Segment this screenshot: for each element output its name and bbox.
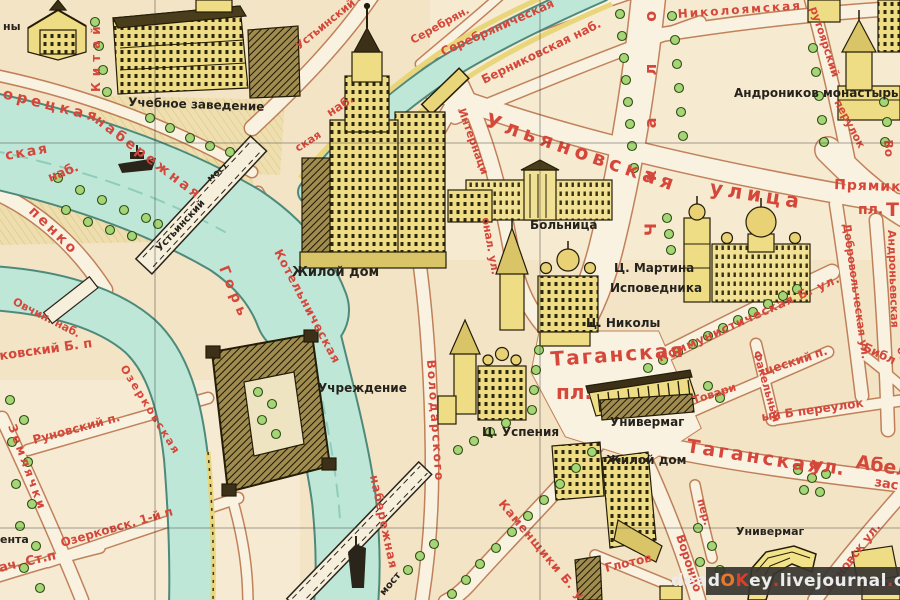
tree-icon	[20, 416, 29, 425]
tree-icon	[142, 214, 151, 223]
tree-icon	[667, 246, 676, 255]
poi-label-универмаг: Универмаг	[610, 415, 684, 429]
tree-icon	[128, 232, 137, 241]
tree-icon	[540, 496, 549, 505]
tree-icon	[626, 120, 635, 129]
poi-label-ц-успения: Ц. Успения	[482, 425, 559, 439]
watermark-text: livejournal	[780, 571, 887, 591]
watermark-dot: .	[773, 571, 780, 591]
street-label-т: Т	[886, 199, 899, 221]
poi-label-жилой-дом: Жилой дом	[606, 453, 686, 467]
street-label-прямико: Прямико	[834, 177, 900, 196]
map-canvas: орецкаяскаянаб.набережнаяКитайУстьинский…	[0, 0, 900, 600]
poi-label-универмаг: Универмаг	[736, 525, 804, 538]
tree-icon	[671, 36, 680, 45]
tree-icon	[106, 226, 115, 235]
map-viewport: орецкаяскаянаб.набережнаяКитайУстьинский…	[0, 0, 900, 600]
tree-icon	[556, 480, 565, 489]
tree-icon	[816, 488, 825, 497]
tree-icon	[675, 84, 684, 93]
tree-icon	[16, 522, 25, 531]
tree-icon	[620, 54, 629, 63]
watermark-text: ey	[749, 571, 773, 591]
tree-icon	[622, 76, 631, 85]
tree-icon	[76, 186, 85, 195]
tree-icon	[530, 386, 539, 395]
tree-icon	[618, 32, 627, 41]
tree-icon	[32, 542, 41, 551]
tree-icon	[120, 206, 129, 215]
tree-icon	[84, 218, 93, 227]
livejournal-watermark: deadOKey.livejournal.com	[706, 567, 900, 595]
tree-icon	[36, 584, 45, 593]
tree-icon	[6, 396, 15, 405]
poi-label-исповедника: Исповедника	[610, 281, 702, 295]
tree-icon	[430, 540, 439, 549]
tree-icon	[679, 132, 688, 141]
tree-icon	[416, 552, 425, 561]
tree-icon	[616, 10, 625, 19]
tree-icon	[62, 206, 71, 215]
tree-icon	[665, 230, 674, 239]
watermark-text: com	[894, 571, 900, 591]
watermark-dot: .	[887, 571, 894, 591]
tree-icon	[103, 88, 112, 97]
tree-icon	[818, 116, 827, 125]
poi-label-ента: ента	[0, 533, 29, 546]
tree-icon	[462, 576, 471, 585]
poi-label-учреждение: Учреждение	[318, 381, 407, 395]
poi-label-ны: ны	[3, 20, 21, 33]
tree-icon	[404, 566, 413, 575]
tree-icon	[476, 560, 485, 569]
street-label-пл-: пл.	[556, 380, 592, 404]
street-label-пл-: пл.	[858, 202, 883, 218]
tree-icon	[673, 60, 682, 69]
tree-icon	[708, 542, 717, 551]
tree-icon	[535, 346, 544, 355]
tree-icon	[146, 114, 155, 123]
street-label-чкалова: Чкалова	[641, 0, 660, 236]
tree-icon	[800, 486, 809, 495]
tree-icon	[254, 388, 263, 397]
tree-icon	[820, 138, 829, 147]
tree-icon	[663, 214, 672, 223]
tree-icon	[668, 12, 677, 21]
tree-icon	[268, 400, 277, 409]
tree-icon	[454, 446, 463, 455]
tree-icon	[624, 98, 633, 107]
poi-label-ц-мартина: Ц. Мартина	[614, 261, 694, 275]
tree-icon	[272, 430, 281, 439]
tree-icon	[98, 196, 107, 205]
tree-icon	[644, 364, 653, 373]
street-label-китай: Китай	[89, 20, 103, 92]
tree-icon	[883, 118, 892, 127]
tree-icon	[258, 416, 267, 425]
tree-icon	[186, 134, 195, 143]
poi-label-жилой-дом: Жилой дом	[292, 265, 379, 280]
tree-icon	[588, 448, 597, 457]
watermark-text: dead	[671, 571, 720, 591]
tree-icon	[12, 480, 21, 489]
tree-icon	[166, 124, 175, 133]
poi-label-андроников-монастырь: Андроников монастырь	[734, 86, 899, 100]
tree-icon	[448, 590, 457, 599]
tree-icon	[572, 464, 581, 473]
tree-icon	[812, 68, 821, 77]
tree-icon	[677, 108, 686, 117]
tree-icon	[532, 366, 541, 375]
poi-label-ц-николы: Ц. Николы	[586, 316, 660, 330]
tree-icon	[528, 406, 537, 415]
street-label-во: Во	[881, 139, 896, 158]
tree-icon	[226, 148, 235, 157]
tree-icon	[809, 44, 818, 53]
tree-icon	[492, 544, 501, 553]
watermark-text: O	[721, 571, 736, 591]
tree-icon	[470, 437, 479, 446]
watermark-text: K	[735, 571, 749, 591]
